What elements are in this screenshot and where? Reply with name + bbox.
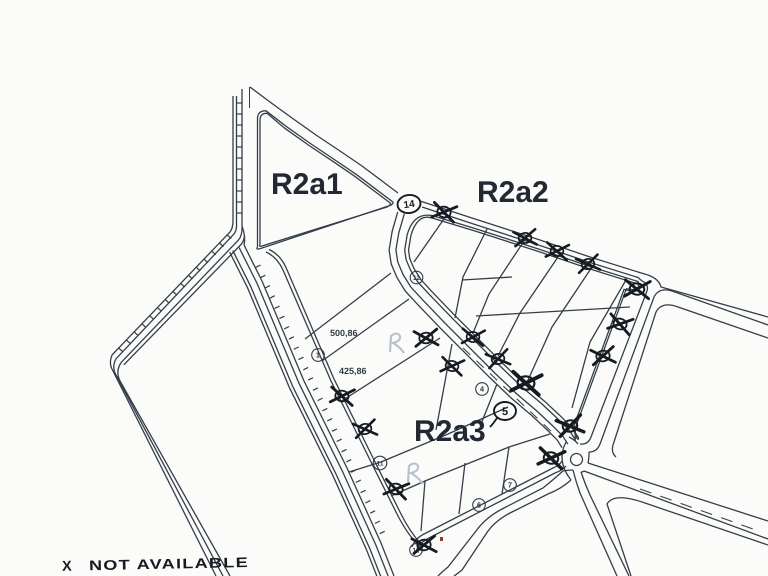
svg-text:5: 5 <box>502 406 508 418</box>
svg-text:7: 7 <box>508 481 512 490</box>
svg-text:425,86: 425,86 <box>339 366 367 376</box>
svg-text:R2a1: R2a1 <box>271 168 343 201</box>
svg-text:6: 6 <box>477 501 481 510</box>
svg-text:X: X <box>62 559 72 575</box>
svg-text:12: 12 <box>413 275 421 282</box>
svg-text:14: 14 <box>403 199 416 212</box>
svg-text:R2a3: R2a3 <box>414 415 486 448</box>
svg-text:NOT AVAILABLE: NOT AVAILABLE <box>89 554 249 573</box>
svg-text:500,86: 500,86 <box>330 328 358 338</box>
svg-text:11: 11 <box>377 460 384 467</box>
svg-text:1: 1 <box>316 351 320 360</box>
svg-text:R2a2: R2a2 <box>477 176 549 209</box>
